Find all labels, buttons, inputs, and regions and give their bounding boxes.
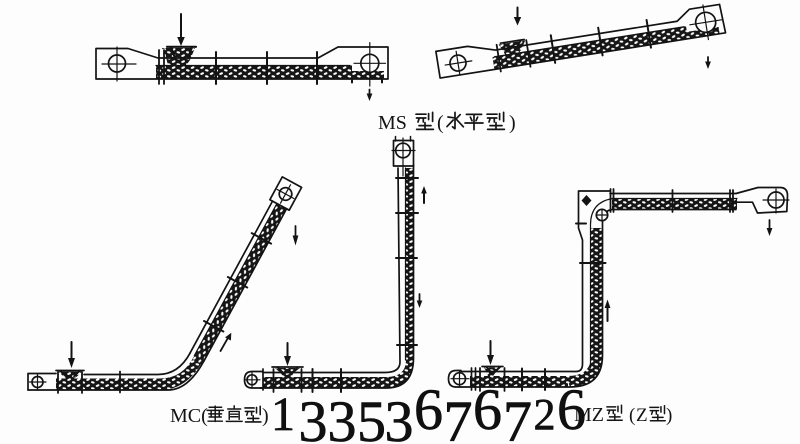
svg-text:3: 3 (299, 389, 328, 444)
svg-text:3: 3 (385, 389, 414, 444)
svg-text:(: ( (629, 405, 635, 426)
svg-text:(: ( (437, 112, 444, 134)
svg-text:5: 5 (357, 389, 386, 444)
svg-text:7: 7 (503, 389, 532, 444)
svg-text:6: 6 (473, 377, 502, 442)
svg-text:3: 3 (328, 389, 357, 444)
svg-text:MS: MS (378, 112, 407, 134)
svg-text:2: 2 (534, 390, 556, 439)
svg-text:7: 7 (444, 389, 473, 444)
svg-text:6: 6 (414, 377, 443, 442)
svg-text:6: 6 (557, 377, 586, 442)
svg-text:): ) (509, 112, 516, 134)
svg-text:1: 1 (271, 388, 295, 441)
svg-text:): ) (666, 405, 672, 426)
svg-text:): ) (262, 405, 269, 427)
svg-text:Z: Z (636, 405, 648, 426)
svg-text:MC(: MC( (170, 405, 208, 427)
